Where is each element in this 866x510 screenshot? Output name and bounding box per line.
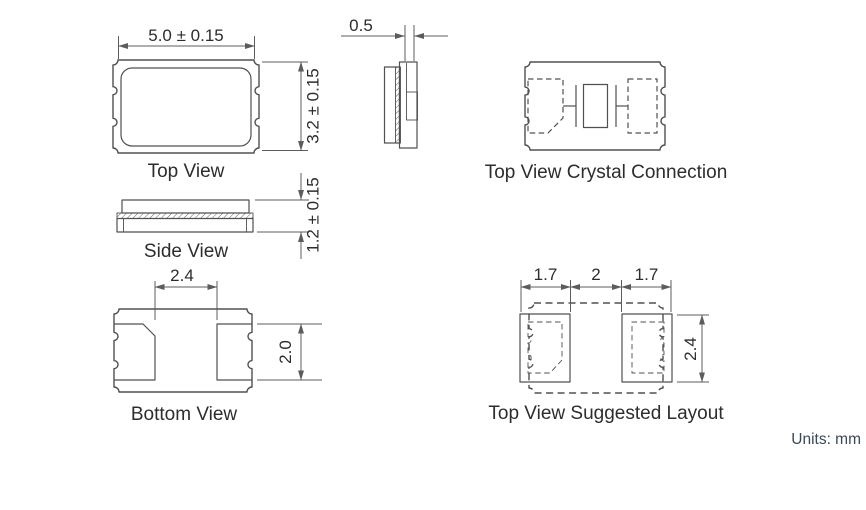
hidden-pad-2 [628, 79, 657, 133]
top-view-width-dimension: 5.0 ± 0.15 [148, 26, 224, 45]
package-lid-outline [121, 68, 251, 146]
land-pad-1 [520, 314, 570, 382]
layout-pad-height-dimension: 2.4 [681, 337, 700, 361]
layout-gap-dimension: 2 [591, 265, 600, 284]
crystal-package-drawing: 5.0 ± 0.15 3.2 ± 0.15 Top View 0.5 1.2 ±… [0, 0, 866, 510]
seal-hatch [117, 213, 253, 219]
bottom-view-pad-height-dimension: 2.0 [276, 340, 295, 364]
land-pad-2 [622, 314, 672, 382]
top-view-height-dimension: 3.2 ± 0.15 [304, 68, 323, 144]
package-body-outline [525, 62, 665, 150]
terminal-pad-1 [114, 324, 155, 380]
castellation-recess [407, 92, 418, 120]
side-view: 1.2 ± 0.15 Side View [117, 173, 323, 262]
crystal-package-drawing-page: 5.0 ± 0.15 3.2 ± 0.15 Top View 0.5 1.2 ±… [0, 0, 866, 510]
bottom-view-label: Bottom View [131, 404, 238, 425]
package-pad-outline-2 [632, 322, 664, 373]
terminal-pad-2 [217, 324, 252, 380]
suggested-layout-label: Top View Suggested Layout [488, 403, 724, 424]
end-view-seam-dimension: 0.5 [349, 16, 373, 35]
side-view-thickness-dimension: 1.2 ± 0.15 [304, 177, 323, 253]
top-view: 5.0 ± 0.15 3.2 ± 0.15 Top View [113, 26, 323, 182]
layout-left-pad-width-dimension: 1.7 [534, 265, 558, 284]
end-view: 0.5 [341, 16, 448, 148]
base-side-outline [117, 219, 253, 233]
hidden-pad-1 [528, 79, 563, 133]
crystal-connection-label: Top View Crystal Connection [485, 162, 728, 183]
side-view-label: Side View [144, 241, 228, 262]
top-view-label: Top View [148, 161, 225, 182]
lid-side-outline [122, 200, 249, 213]
package-outline-dashed [529, 303, 663, 393]
base-end-outline [400, 62, 418, 148]
layout-right-pad-width-dimension: 1.7 [635, 265, 659, 284]
crystal-symbol-body [584, 85, 608, 128]
units-note: Units: mm [791, 431, 861, 448]
suggested-layout-view: 1.7 2 1.7 2.4 Top View Suggested Layout [488, 265, 724, 424]
package-body-outline [113, 60, 259, 153]
bottom-view: 2.4 2.0 Bottom View [114, 266, 322, 425]
bottom-view-gap-dimension: 2.4 [170, 266, 194, 285]
crystal-connection-view: Top View Crystal Connection [485, 62, 728, 183]
